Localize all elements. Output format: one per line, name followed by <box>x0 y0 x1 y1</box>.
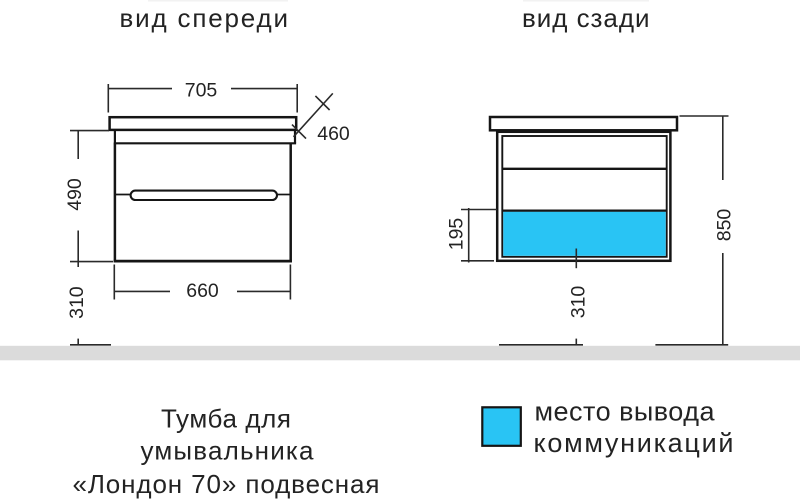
svg-text:вид сзади: вид сзади <box>522 3 650 33</box>
svg-text:850: 850 <box>714 209 736 242</box>
svg-text:коммуникаций: коммуникаций <box>534 428 734 458</box>
svg-text:310: 310 <box>568 286 590 319</box>
svg-text:705: 705 <box>185 80 218 102</box>
svg-text:195: 195 <box>446 218 468 251</box>
svg-text:«Лондон 70» подвесная: «Лондон 70» подвесная <box>73 469 380 499</box>
svg-text:310: 310 <box>66 286 88 319</box>
svg-text:Тумба для: Тумба для <box>161 404 291 434</box>
svg-text:вид спереди: вид спереди <box>120 3 289 33</box>
svg-text:место вывода: место вывода <box>535 396 716 426</box>
svg-text:660: 660 <box>186 280 219 302</box>
svg-text:460: 460 <box>317 123 350 145</box>
svg-text:490: 490 <box>64 178 86 211</box>
svg-text:умывальника: умывальника <box>141 436 315 466</box>
